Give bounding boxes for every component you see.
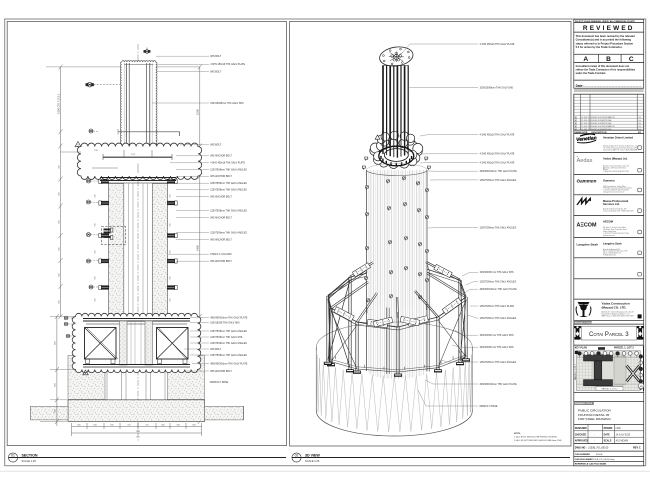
svg-text:500: 500 (95, 194, 97, 197)
svg-text:372: 372 (145, 425, 148, 427)
svg-text:1. ALL BOLT SHOULD BE FIXING O: 1. ALL BOLT SHOULD BE FIXING ON SITE, (514, 436, 558, 439)
svg-text:CAD FILE NAME: CAD FILE NAME (575, 458, 593, 461)
svg-text:450X450X16mm THK GALV PLATE: 450X450X16mm THK GALV PLATE (210, 362, 248, 365)
svg-text:4 SHS 450x16 THK GALV PLATE: 4 SHS 450x16 THK GALV PLATE (210, 63, 245, 66)
svg-text:125X75X8mm THK GALV SHS: 125X75X8mm THK GALV SHS (210, 336, 243, 339)
svg-text:W/S ANCHOR BOLT: W/S ANCHOR BOLT (210, 370, 232, 373)
svg-text:500: 500 (95, 250, 97, 253)
svg-text:PARCEL 1, LOT 1: PARCEL 1, LOT 1 (574, 363, 577, 380)
svg-text:APPROVED: APPROVED (575, 440, 588, 443)
svg-text:500: 500 (95, 298, 97, 301)
svg-text:125X75X8mm THK GALV ANGLES: 125X75X8mm THK GALV ANGLES (210, 209, 247, 212)
svg-text:344: 344 (93, 425, 96, 427)
svg-text:C: C (629, 56, 634, 63)
svg-text:W/S BOLT: W/S BOLT (210, 145, 222, 147)
svg-text:F (853) 2833 1532: F (853) 2833 1532 (603, 255, 616, 257)
svg-text:REVIEWED: REVIEWED (583, 25, 635, 32)
svg-text:500: 500 (95, 276, 97, 279)
svg-text:125X75X8mm THK GALV ANGLES: 125X75X8mm THK GALV ANGLES (210, 182, 247, 185)
svg-text:600: 600 (192, 425, 195, 427)
svg-text:3150B: 3150B (596, 454, 603, 456)
svg-text:500: 500 (169, 276, 171, 279)
svg-text:Aedas: Aedas (577, 158, 593, 164)
svg-text:#2500 R.C BASE: #2500 R.C BASE (210, 381, 228, 384)
svg-text:DRAWING TITLE: DRAWING TITLE (575, 402, 593, 405)
svg-text:Macau T (853) 2833 1710: Macau T (853) 2833 1710 (603, 253, 621, 255)
svg-text:DWG NO :: DWG NO : (575, 447, 587, 450)
svg-text:relieve the Trade Contracto: relieve the Trade Contractor of his resp… (576, 68, 636, 71)
svg-text:# 500 R.C COLUMN: # 500 R.C COLUMN (210, 254, 232, 256)
svg-text:12-JUN-15: 12-JUN-15 (581, 120, 590, 122)
svg-text:1500 (TO T.O.S.): 1500 (TO T.O.S.) (56, 94, 60, 114)
svg-text:SCALE 1:25: SCALE 1:25 (305, 459, 320, 463)
svg-text:SCALE: SCALE (604, 440, 612, 443)
svg-text:450X450X16mm THK GALV PLATE: 450X450X16mm THK GALV PLATE (480, 288, 518, 291)
svg-text:Aedas (Macau) Ltd.: Aedas (Macau) Ltd. (603, 157, 628, 161)
svg-text:4 SHS 450x16 THK GALV PLATE: 4 SHS 450x16 THK GALV PLATE (210, 162, 245, 165)
svg-text:125X75X8mm THK GALV ANGLES: 125X75X8mm THK GALV ANGLES (480, 179, 517, 182)
svg-text:500: 500 (169, 250, 171, 253)
svg-text:W/S ANCHOR BOLT: W/S ANCHOR BOLT (210, 260, 232, 263)
svg-text:125X75X8mm THK GALV ANGLES: 125X75X8mm THK GALV ANGLES (480, 280, 517, 283)
svg-text:W/S BOLT: W/S BOLT (210, 56, 222, 58)
svg-text:4 SHS 450x16 THK GALV PLATE: 4 SHS 450x16 THK GALV PLATE (480, 161, 515, 164)
svg-text:Macau: Macau (603, 169, 608, 171)
svg-text:LWD: LWD (616, 428, 621, 430)
svg-text:Gammon: Gammon (603, 178, 615, 182)
svg-text:1400: 1400 (196, 245, 200, 251)
svg-text:125X75X8mm THK GALV ANGLES: 125X75X8mm THK GALV ANGLES (210, 168, 247, 171)
svg-text:02: 02 (295, 453, 299, 457)
svg-text:600: 600 (161, 425, 164, 427)
svg-text:status referred to in Pro: status referred to in Project Procedure … (576, 41, 634, 45)
svg-text:4 SHS 450x16 THK GALV PLATE: 4 SHS 450x16 THK GALV PLATE (480, 43, 515, 46)
svg-text:125X75X8mm THK GALV ANGLES: 125X75X8mm THK GALV ANGLES (210, 231, 247, 234)
svg-text:AECOM: AECOM (603, 219, 614, 223)
svg-text:W/S ANCHOR BOLT: W/S ANCHOR BOLT (210, 155, 232, 158)
svg-text:SECTION: SECTION (22, 454, 38, 458)
svg-text:W/S ANCHOR BOLT: W/S ANCHOR BOLT (210, 238, 232, 241)
svg-text:5.4 for action by the Tra: 5.4 for action by the Trade Contractor. (576, 45, 623, 49)
svg-text:CAD NUMBER: CAD NUMBER (575, 453, 590, 456)
svg-text:A: A (583, 56, 588, 63)
svg-text:125X75X8mm THK GALV ANGLES: 125X75X8mm THK GALV ANGLES (210, 342, 247, 345)
svg-text:150X150X8mm THK GALV SHS: 150X150X8mm THK GALV SHS (480, 86, 514, 89)
svg-text:Services Ltd.: Services Ltd. (603, 202, 620, 206)
svg-text:150X150X8mm THK GALV SHS: 150X150X8mm THK GALV SHS (210, 102, 244, 105)
svg-text:DRAWN: DRAWN (604, 427, 613, 430)
svg-text:3150B_FD_85010: 3150B_FD_85010 (588, 447, 609, 450)
svg-text:28/F, Devon House, Taikoo Plac: 28/F, Devon House, Taikoo Place (603, 186, 626, 188)
svg-text:125X75X8mm THK GALV ANGLES: 125X75X8mm THK GALV ANGLES (480, 317, 517, 320)
svg-text:ISSUED FOR APPROVAL: ISSUED FOR APPROVAL (591, 122, 612, 125)
svg-text:Consultant review of this: Consultant review of this document does … (576, 65, 630, 68)
svg-text:B: B (606, 56, 611, 63)
svg-text:125X75X8mm THK GALV ANGLES: 125X75X8mm THK GALV ANGLES (480, 227, 517, 230)
svg-text:ISSUED FOR APPROVAL: ISSUED FOR APPROVAL (591, 119, 612, 122)
svg-text:REFERENCE CAD FILE NAME: REFERENCE CAD FILE NAME (575, 463, 607, 466)
svg-text:600: 600 (110, 425, 113, 427)
svg-text:500: 500 (95, 223, 97, 226)
svg-text:450X450X16mm THK GALV PLATE: 450X450X16mm THK GALV PLATE (480, 383, 518, 386)
svg-text:This document has been rev: This document has been revised by the re… (576, 34, 635, 38)
svg-text:125X75X8mm THK GALV ANGLES: 125X75X8mm THK GALV ANGLES (210, 354, 247, 357)
svg-text:PARCEL 1, LOT 2: PARCEL 1, LOT 2 (614, 347, 634, 350)
svg-text:3150B_FD_85010.dwg: 3150B_FD_85010.dwg (592, 459, 615, 461)
svg-text:KEY PLAN: KEY PLAN (575, 347, 587, 350)
svg-text:Langdon·Seah: Langdon·Seah (577, 242, 599, 246)
svg-text:CHECKED: CHECKED (575, 434, 587, 436)
svg-text:AS SHOWN: AS SHOWN (616, 440, 629, 443)
svg-text:T +852 2516 8823 F +852 2516: T +852 2516 8823 F +852 2516 6260 (603, 190, 629, 192)
svg-text:Date :: Date : (576, 84, 585, 88)
svg-text:(Macau) CO. LTD.: (Macau) CO. LTD. (602, 305, 627, 309)
svg-text:150X150X8 mm THK GALV SHS: 150X150X8 mm THK GALV SHS (480, 271, 515, 274)
svg-text:Consultants(s) and is accor: Consultants(s) and is accorded the follo… (576, 38, 632, 42)
svg-text:SCALE 1:25: SCALE 1:25 (22, 459, 37, 463)
svg-text:Gammon: Gammon (577, 179, 597, 184)
svg-text:AΞCOM: AΞCOM (577, 222, 597, 228)
svg-text:125X75X8mm THK GALV ANGLES: 125X75X8mm THK GALV ANGLES (210, 189, 247, 192)
svg-text:4 SHS 450x16 THK GALV PLATE: 4 SHS 450x16 THK GALV PLATE (480, 134, 515, 137)
svg-text:125X75X8mm THK GALV ANGLES: 125X75X8mm THK GALV ANGLES (480, 361, 517, 364)
svg-text:China Law Building, 12/F T (8: China Law Building, 12/F T (853) 2832 25… (603, 210, 633, 212)
svg-text:600: 600 (77, 425, 80, 427)
svg-text:REV C: REV C (633, 447, 641, 450)
svg-text:500: 500 (169, 298, 171, 301)
svg-text:150X150X8 mm THK GALV SHS: 150X150X8 mm THK GALV SHS (480, 346, 515, 349)
svg-text:372: 372 (127, 425, 130, 427)
svg-text:3D VIEW: 3D VIEW (305, 454, 320, 458)
svg-text:NOTE:: NOTE: (514, 433, 521, 435)
svg-text:www.aecom.com: www.aecom.com (603, 235, 615, 237)
svg-text:T +852 2317 7000 F +852 2317: T +852 2317 7000 F +852 2317 7609 (603, 233, 629, 235)
svg-text:150X150X8 mm THK GALV SHS: 150X150X8 mm THK GALV SHS (480, 334, 515, 337)
svg-text:150X150X8 THK GALV SHS: 150X150X8 THK GALV SHS (210, 321, 240, 324)
svg-text:1500: 1500 (196, 109, 200, 115)
svg-text:ISSUED FOR INFORMATION: ISSUED FOR INFORMATION (591, 116, 616, 119)
svg-text:12-JUN-15: 12-JUN-15 (581, 123, 590, 125)
svg-text:4 SHS 450x16 THK GALV PLATE: 4 SHS 450x16 THK GALV PLATE (480, 153, 515, 156)
svg-text:Langdon Seah: Langdon Seah (603, 241, 622, 245)
svg-text:W/S ANCHOR BOLT: W/S ANCHOR BOLT (210, 195, 232, 198)
svg-text:450X450X16mm THK GALV PLATE: 450X450X16mm THK GALV PLATE (480, 170, 518, 173)
svg-text:under the Trade Contract.: under the Trade Contract. (576, 72, 607, 75)
svg-text:Venetian Orient Limited: Venetian Orient Limited (603, 136, 633, 140)
svg-text:2644: 2644 (136, 431, 140, 433)
svg-text:T (853) 2871 5033 F (853) 287: T (853) 2871 5033 F (853) 2871 5033 (603, 171, 629, 173)
svg-text:12-JUN-15: 12-JUN-15 (581, 117, 590, 119)
svg-text:#2500 R.C BASE: #2500 R.C BASE (480, 405, 498, 408)
svg-text:W/S BOLT: W/S BOLT (210, 72, 222, 74)
svg-text:500: 500 (169, 223, 171, 226)
svg-text:PARCEL 3, LOT 2: PARCEL 3, LOT 2 (601, 388, 618, 391)
svg-text:125X75X8mm THK GALV PLATE: 125X75X8mm THK GALV PLATE (480, 305, 515, 308)
svg-text:14-JULY-2015: 14-JULY-2015 (616, 434, 631, 436)
svg-text:01: 01 (11, 453, 15, 457)
svg-text:344: 344 (176, 425, 179, 427)
svg-text:W/S BOLT: W/S BOLT (210, 349, 222, 351)
svg-text:500: 500 (169, 194, 171, 197)
svg-text:FOR STEEL DRAWING: FOR STEEL DRAWING (578, 417, 611, 421)
svg-text:W/S ANCHOR BOLT: W/S ANCHOR BOLT (210, 175, 232, 178)
svg-text:DESIGNED: DESIGNED (575, 428, 587, 430)
svg-text:125X75X8mm THK GALV ANGLES: 125X75X8mm THK GALV ANGLES (210, 330, 247, 333)
svg-text:-: - (296, 460, 297, 464)
svg-text:DATE: DATE (604, 433, 611, 436)
svg-text:12-JUN-15: 12-JUN-15 (581, 126, 590, 128)
svg-text:2. ALL FILLET WELDED SHOULD BE: 2. ALL FILLET WELDED SHOULD BE 6mm THK. (514, 439, 562, 442)
svg-text:-: - (13, 460, 14, 464)
svg-text:ISSUED FOR INFORMATION: ISSUED FOR INFORMATION (591, 125, 616, 128)
svg-text:450X450X16mm THK GALV PLATE: 450X450X16mm THK GALV PLATE (210, 316, 248, 319)
svg-text:W/S ANCHOR BOLT: W/S ANCHOR BOLT (210, 217, 232, 220)
